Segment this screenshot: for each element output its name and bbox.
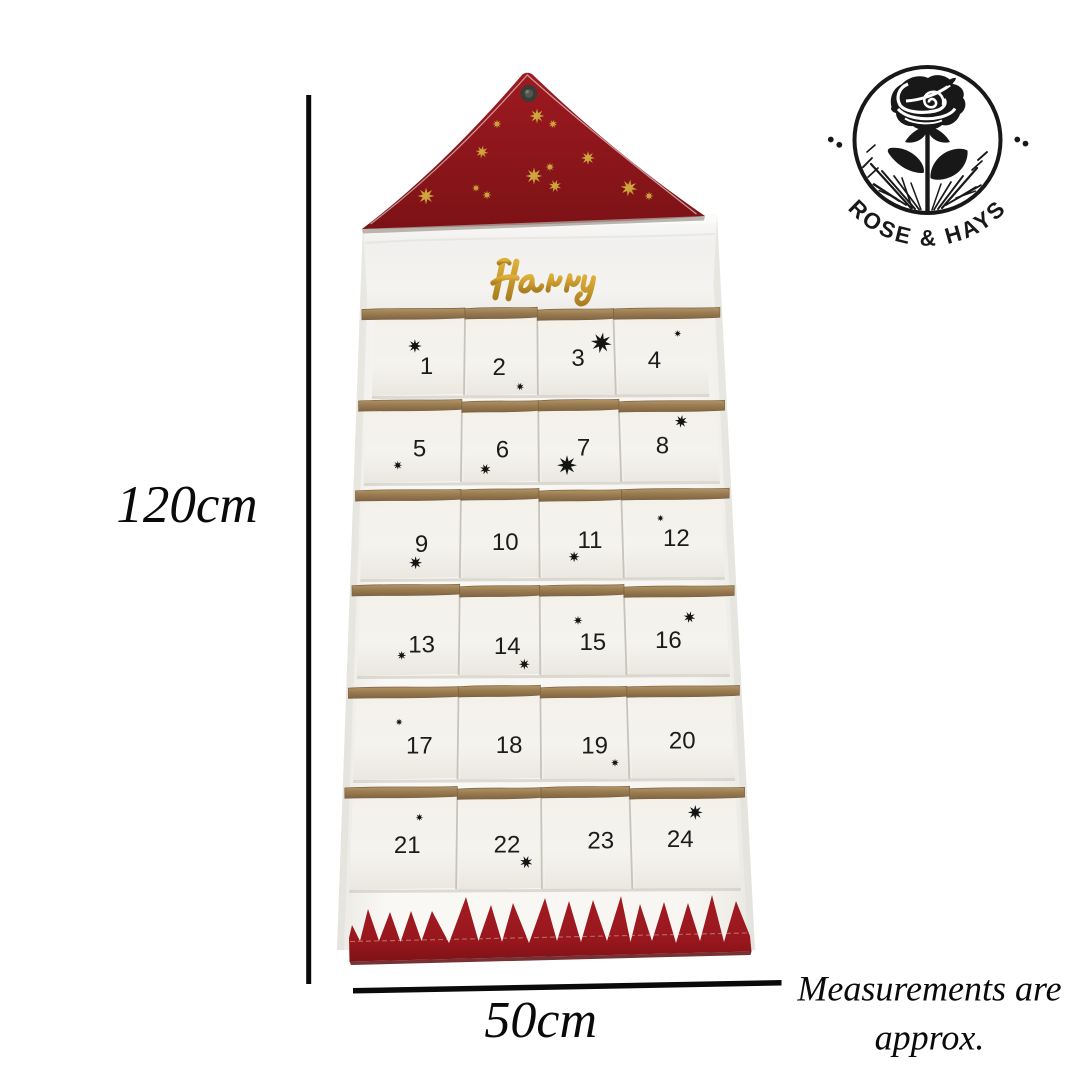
svg-text:16: 16 <box>655 627 682 654</box>
svg-text:22: 22 <box>494 832 521 859</box>
svg-text:4: 4 <box>648 347 661 374</box>
svg-text:11: 11 <box>578 527 603 554</box>
svg-text:2: 2 <box>493 354 506 381</box>
svg-text:9: 9 <box>415 531 428 558</box>
svg-text:1: 1 <box>420 353 433 380</box>
svg-text:18: 18 <box>496 732 523 759</box>
svg-text:14: 14 <box>494 633 521 660</box>
svg-text:5: 5 <box>413 436 426 463</box>
svg-text:8: 8 <box>656 433 669 460</box>
svg-text:21: 21 <box>394 832 421 859</box>
svg-text:17: 17 <box>406 733 433 760</box>
svg-text:19: 19 <box>581 733 608 760</box>
svg-text:50cm: 50cm <box>484 992 597 1049</box>
svg-text:Measurements are: Measurements are <box>796 969 1061 1009</box>
svg-text:13: 13 <box>408 632 435 659</box>
svg-text:12: 12 <box>663 525 690 552</box>
svg-text:3: 3 <box>571 345 584 372</box>
svg-text:10: 10 <box>492 529 519 556</box>
svg-text:6: 6 <box>496 437 509 464</box>
svg-text:20: 20 <box>669 728 696 755</box>
svg-text:120cm: 120cm <box>116 476 257 534</box>
svg-text:7: 7 <box>577 435 590 462</box>
svg-text:15: 15 <box>579 629 606 656</box>
svg-text:23: 23 <box>587 828 614 855</box>
svg-text:approx.: approx. <box>875 1018 985 1058</box>
svg-text:24: 24 <box>667 826 694 853</box>
